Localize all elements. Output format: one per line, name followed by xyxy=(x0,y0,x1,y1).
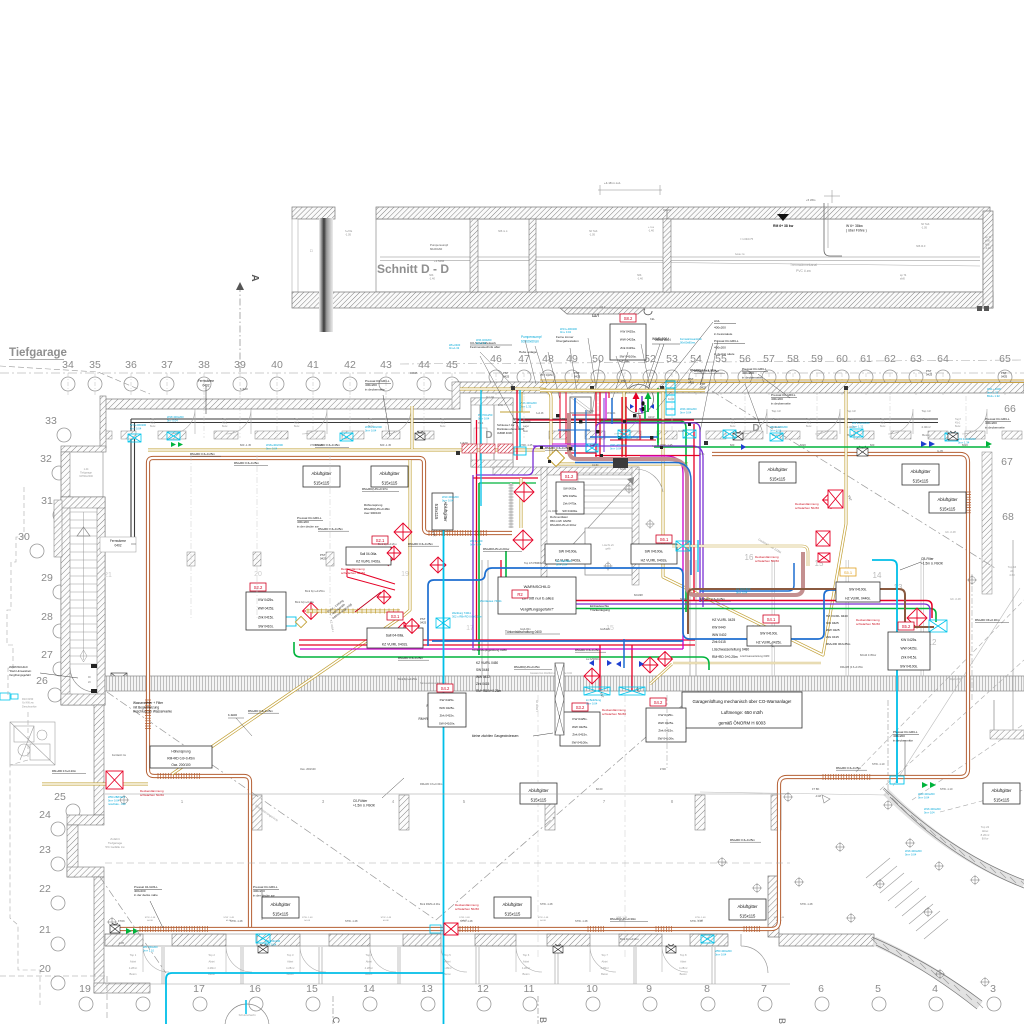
svg-text:-0.48: -0.48 xyxy=(815,794,821,798)
svg-text:W4 b+400/200: W4 b+400/200 xyxy=(958,437,976,441)
svg-text:Blvd+ 1.92: Blvd+ 1.92 xyxy=(987,394,1000,398)
svg-text:Betw: Betw xyxy=(955,425,961,428)
svg-text:W18 400x200: W18 400x200 xyxy=(167,415,184,419)
svg-text:KW 0425s.: KW 0425s. xyxy=(440,698,455,702)
svg-text:Lager: Lager xyxy=(523,425,529,428)
svg-text:4.60: 4.60 xyxy=(1009,573,1015,577)
svg-text:20: 20 xyxy=(254,571,262,578)
svg-text:RM+RD 0.6+0.25m: RM+RD 0.6+0.25m xyxy=(730,838,755,842)
svg-text:Top 4: Top 4 xyxy=(366,953,373,957)
svg-text:Wartburg 74011: Wartburg 74011 xyxy=(452,611,471,615)
svg-text:56: 56 xyxy=(739,353,751,365)
svg-text:RM+RD 0.6+0.45m: RM+RD 0.6+0.45m xyxy=(167,756,195,760)
svg-text:34760x2000: 34760x2000 xyxy=(79,475,93,478)
svg-text:0m+ 0.04: 0m+ 0.04 xyxy=(680,410,692,414)
svg-text:33: 33 xyxy=(45,415,57,427)
svg-text:+4.18 m.ü.A.: +4.18 m.ü.A. xyxy=(604,181,621,185)
svg-text:RM+RD 0.6+0.25m: RM+RD 0.6+0.25m xyxy=(318,527,343,531)
svg-text:21: 21 xyxy=(104,572,112,579)
svg-text:KW 0425s.: KW 0425s. xyxy=(258,598,274,602)
svg-text:0m+1.32: 0m+1.32 xyxy=(476,341,487,345)
svg-text:8220: 8220 xyxy=(800,443,806,447)
svg-text:b1.04: b1.04 xyxy=(668,398,675,401)
svg-text:Sall 04-0illa.: Sall 04-0illa. xyxy=(386,634,405,638)
svg-text:Zirk 0415s.: Zirk 0415s. xyxy=(572,733,587,737)
svg-text:RM+RD 0.6+0.25m: RM+RD 0.6+0.25m xyxy=(836,766,861,770)
svg-text:58: 58 xyxy=(787,353,799,365)
svg-text:Abluftgitter: Abluftgitter xyxy=(528,788,549,793)
svg-text:+5 Whs: +5 Whs xyxy=(806,198,816,202)
svg-text:515x115: 515x115 xyxy=(740,913,756,918)
svg-text:Schnitt D - D: Schnitt D - D xyxy=(377,262,449,276)
svg-text:b+0.48: b+0.48 xyxy=(536,412,544,415)
svg-text:ZbW 04: ZbW 04 xyxy=(607,412,616,415)
svg-text:ШЛ: ШЛ xyxy=(592,313,599,318)
svg-text:4: 4 xyxy=(932,983,938,995)
svg-text:04K25: 04K25 xyxy=(410,371,418,375)
svg-text:Abluftgitter: Abluftgitter xyxy=(737,904,758,909)
svg-text:HZ VU/RL 0425: HZ VU/RL 0425 xyxy=(712,618,735,622)
svg-text:41: 41 xyxy=(307,359,319,371)
svg-text:RM+RD 0.6+0.25m: RM+RD 0.6+0.25m xyxy=(398,656,423,660)
svg-text:SW 0410s.: SW 0410s. xyxy=(258,624,274,628)
svg-text:8: 8 xyxy=(704,983,710,995)
svg-text:10: 10 xyxy=(586,983,598,995)
svg-text:+1.5m ü. FBOK: +1.5m ü. FBOK xyxy=(353,803,376,807)
svg-text:Beton: Beton xyxy=(129,972,137,976)
svg-text:Festmesstechnik after: Festmesstechnik after xyxy=(470,345,500,349)
svg-text:Zirk 0415s.: Zirk 0415s. xyxy=(258,616,274,620)
svg-text:04K25: 04K25 xyxy=(563,430,571,433)
svg-text:HZ VU/RL 0440s.: HZ VU/RL 0440s. xyxy=(845,596,871,600)
svg-text:PST: PST xyxy=(621,379,627,383)
svg-text:W16 400x200: W16 400x200 xyxy=(905,849,922,853)
svg-text:WW 0402: WW 0402 xyxy=(712,633,727,637)
svg-text:60x60x60cm: 60x60x60cm xyxy=(521,339,539,343)
svg-text:60x60x60: 60x60x60 xyxy=(430,247,443,251)
svg-text:Top 2: Top 2 xyxy=(208,953,215,957)
svg-text:WW 0425a.: WW 0425a. xyxy=(620,338,636,342)
svg-text:Oax. 200/100: Oax. 200/100 xyxy=(171,763,190,767)
svg-text:RM+RD 0.6+0.25m: RM+RD 0.6+0.25m xyxy=(234,461,259,465)
svg-text:UJ.I: UJ.I xyxy=(600,305,605,309)
svg-text:Top 13: Top 13 xyxy=(921,409,930,413)
svg-text:KZ VU/RL 0402s.: KZ VU/RL 0402s. xyxy=(382,642,408,646)
svg-text:820 -1.45: 820 -1.45 xyxy=(380,443,392,447)
svg-text:W4b 400x200: W4b 400x200 xyxy=(610,443,627,447)
svg-text:STW -1.48: STW -1.48 xyxy=(575,919,588,923)
svg-text:50: 50 xyxy=(592,353,604,365)
svg-text:Löschwasserleitung 0480: Löschwasserleitung 0480 xyxy=(712,648,749,652)
svg-text:RM+RD 0K+0.30m: RM+RD 0K+0.30m xyxy=(975,618,1000,622)
svg-text:RM+RD 0.6+0.30m: RM+RD 0.6+0.30m xyxy=(420,782,442,786)
svg-text:Gwb-82n: Gwb-82n xyxy=(520,627,531,631)
svg-text:Gwstand zw 40x20cm zw Betw zw: Gwstand zw 40x20cm zw Betw zw 0.04 xyxy=(530,672,573,675)
svg-text:Abtei: Abtei xyxy=(848,417,855,421)
svg-text:0425: 0425 xyxy=(503,374,510,378)
svg-text:Garagenlüftung mechanisch über: Garagenlüftung mechanisch über CO-Warnan… xyxy=(693,699,792,704)
svg-text:82.00: 82.00 xyxy=(596,787,603,791)
svg-text:KEL: KEL xyxy=(650,317,655,321)
svg-text:ZzW: ZzW xyxy=(498,404,504,407)
svg-text:sp 74: sp 74 xyxy=(985,235,992,239)
svg-text:betau zw: betau zw xyxy=(735,253,745,256)
svg-text:0m b: 0m b xyxy=(699,453,705,456)
svg-text:SW 04100a.: SW 04100a. xyxy=(562,509,578,513)
svg-text:0m+ 0.04: 0m+ 0.04 xyxy=(130,426,142,430)
svg-text:515x115: 515x115 xyxy=(434,504,439,520)
svg-text:SW 0425a.: SW 0425a. xyxy=(563,486,577,490)
svg-text:zoo 500x800: zoo 500x800 xyxy=(556,559,572,563)
svg-text:14: 14 xyxy=(873,571,882,580)
svg-text:Erende: Erende xyxy=(523,420,531,423)
svg-text:-1.40: -1.40 xyxy=(637,277,643,281)
svg-text:# f00: # f00 xyxy=(660,767,666,771)
svg-text:0x 1.04: 0x 1.04 xyxy=(486,396,495,399)
svg-text:W 0+400/200: W 0+400/200 xyxy=(130,423,147,427)
svg-text:5% Gefälle zw: 5% Gefälle zw xyxy=(105,845,125,849)
svg-text:Abluftgitter: Abluftgitter xyxy=(270,902,291,907)
svg-text:STW -1.48: STW -1.48 xyxy=(690,919,703,923)
svg-text:S3.2: S3.2 xyxy=(576,705,585,710)
svg-text:59: 59 xyxy=(811,353,823,365)
svg-text:SW 04100s.: SW 04100s. xyxy=(849,588,867,592)
svg-text:Abluftgitter: Abluftgitter xyxy=(910,469,931,474)
svg-text:64: 64 xyxy=(937,353,949,365)
svg-text:Abtei: Abtei xyxy=(523,959,530,963)
svg-text:00x60x80zw: 00x60x80zw xyxy=(680,340,695,344)
svg-text:Fernwärmeantrieb: Fernwärmeantrieb xyxy=(680,337,702,341)
svg-text:48: 48 xyxy=(542,353,554,365)
svg-text:1.44: 1.44 xyxy=(84,468,89,471)
svg-text:D: D xyxy=(752,423,759,434)
svg-text:1.04/LW: 1.04/LW xyxy=(585,410,594,413)
svg-text:3xB08 4030: 3xB08 4030 xyxy=(497,431,512,435)
svg-text:h+7ds: h+7ds xyxy=(345,229,353,233)
svg-text:Tw-b: Tw-b xyxy=(478,422,484,425)
svg-text:Oax. 200/100: Oax. 200/100 xyxy=(300,767,316,771)
svg-text:S4.2: S4.2 xyxy=(654,700,663,705)
svg-text:in deckig säule: in deckig säule xyxy=(714,352,735,356)
svg-text:Top 13: Top 13 xyxy=(846,409,855,413)
svg-text:4.28m²: 4.28m² xyxy=(207,966,215,970)
svg-text:W 6+ 38kw: W 6+ 38kw xyxy=(846,224,863,228)
svg-text:S6.1: S6.1 xyxy=(660,537,669,542)
svg-text:S3.1: S3.1 xyxy=(391,614,400,619)
svg-text:63: 63 xyxy=(910,353,922,365)
svg-text:Top 5: Top 5 xyxy=(444,953,451,957)
svg-text:4.28m²: 4.28m² xyxy=(129,966,137,970)
svg-text:7: 7 xyxy=(761,983,767,995)
svg-text:53: 53 xyxy=(666,353,678,365)
svg-text:HZ VU/RL 0440: HZ VU/RL 0440 xyxy=(826,614,848,618)
svg-text:68: 68 xyxy=(1002,511,1014,523)
svg-text:Betw: Betw xyxy=(222,425,228,428)
svg-text:13: 13 xyxy=(421,983,433,995)
svg-text:Abtei: Abtei xyxy=(366,959,373,963)
svg-text:0425: 0425 xyxy=(1001,374,1008,378)
svg-text:60: 60 xyxy=(836,353,848,365)
svg-text:36: 36 xyxy=(125,359,137,371)
svg-text:W50 400x200: W50 400x200 xyxy=(715,949,732,953)
svg-text:Pn 700x250: Pn 700x250 xyxy=(478,413,493,417)
svg-text:Zirk 0415a.: Zirk 0415a. xyxy=(620,346,636,350)
svg-text:0425: 0425 xyxy=(420,620,427,624)
svg-text:SW 04100a.: SW 04100a. xyxy=(619,354,636,358)
svg-text:Höhensprung: Höhensprung xyxy=(171,750,190,754)
svg-text:Abtei: Abtei xyxy=(602,959,609,963)
svg-text:0m+ 0.04: 0m+ 0.04 xyxy=(560,330,571,334)
svg-text:-1.40: -1.40 xyxy=(985,246,991,250)
svg-text:16: 16 xyxy=(745,553,754,562)
svg-text:S5.2: S5.2 xyxy=(902,624,911,629)
svg-text:RM+RD(U/N+0.37m: RM+RD(U/N+0.37m xyxy=(362,487,389,491)
svg-text:W4b 400x200: W4b 400x200 xyxy=(520,401,537,405)
svg-text:h0 7wb: h0 7wb xyxy=(921,222,930,226)
svg-text:KW 0425a.: KW 0425a. xyxy=(620,329,635,333)
svg-text:WW 0425s.: WW 0425s. xyxy=(258,607,275,611)
svg-text:Beton: Beton xyxy=(922,433,930,437)
svg-text:Tonkonzeptigelstung 0x80: Tonkonzeptigelstung 0x80 xyxy=(472,648,507,652)
svg-text:17: 17 xyxy=(193,983,205,995)
svg-text:0m+ 0.04: 0m+ 0.04 xyxy=(736,590,748,594)
svg-text:Tiefgarage: Tiefgarage xyxy=(80,472,92,475)
svg-text:3: 3 xyxy=(990,983,996,995)
svg-text:S8.2: S8.2 xyxy=(624,316,633,321)
svg-text:in deckenseite: in deckenseite xyxy=(771,401,791,405)
svg-text:Betw: Betw xyxy=(440,425,446,428)
svg-text:Beto: Beto xyxy=(523,430,529,433)
svg-text:Abtei: Abtei xyxy=(287,959,294,963)
svg-text:0m+ 0.04: 0m+ 0.04 xyxy=(442,498,454,502)
svg-text:WW 0425s.: WW 0425s. xyxy=(439,706,455,710)
svg-text:820: 820 xyxy=(730,443,735,447)
svg-text:RM+RB/N+0.25m: RM+RB/N+0.25m xyxy=(476,689,501,693)
svg-text:Bmk b(m+0.2bu: Bmk b(m+0.2bu xyxy=(620,937,639,941)
svg-text:Schutzschacht: Schutzschacht xyxy=(239,1013,256,1017)
svg-text:KZ VU/RL 0402a.: KZ VU/RL 0402a. xyxy=(356,560,381,564)
svg-text:WW 0425s.: WW 0425s. xyxy=(658,721,674,725)
svg-text:400x200: 400x200 xyxy=(714,326,726,330)
svg-text:0402: 0402 xyxy=(114,543,121,547)
svg-text:RM+RD 0.6+0.20m: RM+RD 0.6+0.20m xyxy=(52,769,77,773)
svg-text:h0b: h0b xyxy=(637,273,642,277)
svg-text:Übergabestation: Übergabestation xyxy=(556,339,579,343)
svg-text:= 1.04/0.75: = 1.04/0.75 xyxy=(740,237,754,241)
svg-text:in der decke zw: in der decke zw xyxy=(297,524,319,528)
svg-text:0m+ 1.10: 0m+ 1.10 xyxy=(143,949,154,953)
svg-text:62: 62 xyxy=(884,353,896,365)
svg-text:Beton: Beton xyxy=(522,972,530,976)
svg-text:schwächen 50x50: schwächen 50x50 xyxy=(455,907,479,911)
svg-text:-1.05: -1.05 xyxy=(345,233,351,237)
svg-text:SW 04100s.: SW 04100s. xyxy=(900,664,918,668)
svg-text:Bmk b(m+0.25m: Bmk b(m+0.25m xyxy=(398,677,417,681)
svg-text:RM+RD 0.6+0.45m: RM+RD 0.6+0.45m xyxy=(315,443,340,447)
svg-text:40: 40 xyxy=(271,359,283,371)
svg-text:R10 0150: R10 0150 xyxy=(22,697,34,701)
svg-text:W6 400x200: W6 400x200 xyxy=(143,945,158,949)
svg-text:+ 1.a: + 1.a xyxy=(648,225,654,229)
svg-text:Abluftgitter: Abluftgitter xyxy=(379,471,400,476)
svg-text:Löschwasserleitung 0480: Löschwasserleitung 0480 xyxy=(740,654,770,658)
svg-text:RM 6+ 38 kw: RM 6+ 38 kw xyxy=(773,224,794,228)
svg-text:4.28m²: 4.28m² xyxy=(443,966,451,970)
svg-text:12: 12 xyxy=(477,983,489,995)
svg-text:515x115: 515x115 xyxy=(770,476,786,481)
svg-text:Gw54n5: Gw54n5 xyxy=(600,627,610,631)
svg-text:WWB 800 l: WWB 800 l xyxy=(655,338,671,342)
svg-text:STW -1.48: STW -1.48 xyxy=(145,917,156,919)
svg-text:KW 0425s.: KW 0425s. xyxy=(658,713,673,717)
svg-text:STW -1.48: STW -1.48 xyxy=(540,902,553,906)
svg-text:Deschronkte: Deschronkte xyxy=(22,704,37,708)
svg-text:Top 13: Top 13 xyxy=(771,409,780,413)
svg-text:in deckenseite: in deckenseite xyxy=(985,425,1005,429)
svg-text:B.Kw: B.Kw xyxy=(982,837,990,841)
svg-text:f.b KW zw: f.b KW zw xyxy=(22,701,34,705)
svg-text:3700 -1.45: 3700 -1.45 xyxy=(520,443,533,447)
svg-text:0425: 0425 xyxy=(926,372,933,376)
svg-text:Abtei: Abtei xyxy=(923,417,930,421)
svg-text:Wortlautes 74011: Wortlautes 74011 xyxy=(480,599,502,603)
svg-text:KW 0425: KW 0425 xyxy=(826,621,839,625)
svg-text:in deckenseite: in deckenseite xyxy=(742,375,762,379)
svg-text:44: 44 xyxy=(418,359,430,371)
svg-text:+1.5m ü. FBOK: +1.5m ü. FBOK xyxy=(921,561,944,565)
svg-text:42: 42 xyxy=(344,359,356,371)
svg-text:RM+RD 0+0.25m: RM+RD 0+0.25m xyxy=(712,655,738,659)
svg-text:80.98: 80.98 xyxy=(680,597,687,601)
svg-text:gelb: gelb xyxy=(606,547,611,551)
svg-text:0425a: 0425a xyxy=(560,418,567,421)
svg-text:Abluftgitter: Abluftgitter xyxy=(991,788,1012,793)
svg-text:-2.35: -2.35 xyxy=(118,941,124,945)
svg-text:4.28m²: 4.28m² xyxy=(365,966,373,970)
svg-text:schwächen 50x50: schwächen 50x50 xyxy=(602,712,626,716)
svg-text:sp 74: sp 74 xyxy=(900,273,907,277)
svg-text:STW -1.10: STW -1.10 xyxy=(940,787,953,791)
svg-text:0m+1.32: 0m+1.32 xyxy=(449,346,460,350)
svg-text:Abluftgitter: Abluftgitter xyxy=(937,497,958,502)
svg-text:WARNSCHILD: WARNSCHILD xyxy=(524,584,551,589)
svg-text:0m+ 1.32: 0m+ 1.32 xyxy=(987,390,999,394)
svg-text:SW 04100s.: SW 04100s. xyxy=(572,741,589,745)
svg-text:HZ VU/RL 0402a.: HZ VU/RL 0402a. xyxy=(641,558,668,562)
svg-text:20: 20 xyxy=(39,963,51,975)
svg-text:Bmk RD/N+0.3bu: Bmk RD/N+0.3bu xyxy=(420,902,441,906)
svg-text:Sall 04-0illa.: Sall 04-0illa. xyxy=(360,552,377,556)
svg-text:31: 31 xyxy=(41,495,53,507)
svg-text:in betonsäule: in betonsäule xyxy=(714,332,733,336)
svg-text:19: 19 xyxy=(401,571,409,578)
svg-text:W4b 400x200: W4b 400x200 xyxy=(680,407,697,411)
svg-text:29: 29 xyxy=(41,572,53,584)
svg-text:ILK -0.48: ILK -0.48 xyxy=(950,597,961,601)
svg-text:S5.1: S5.1 xyxy=(844,570,853,575)
svg-text:Zirk 0415: Zirk 0415 xyxy=(712,640,726,644)
svg-text:h0b: h0b xyxy=(429,273,434,277)
svg-text:schwächen 50x50: schwächen 50x50 xyxy=(755,559,779,563)
svg-text:Zirk 0415s.: Zirk 0415s. xyxy=(658,729,673,733)
svg-text:Betw: Betw xyxy=(806,425,812,428)
svg-text:STW -1.48: STW -1.48 xyxy=(459,917,470,919)
svg-text:RM+RD 0.6+0.25m: RM+RD 0.6+0.25m xyxy=(408,542,433,546)
svg-text:SW 04100s.: SW 04100s. xyxy=(658,737,675,741)
svg-text:Top 1/5 PBRNb A: Top 1/5 PBRNb A xyxy=(524,561,544,565)
svg-text:25: 25 xyxy=(54,791,66,803)
svg-text:45: 45 xyxy=(446,359,458,371)
svg-text:0m+ 0.04: 0m+ 0.04 xyxy=(770,428,782,432)
svg-text:Lüscht eft: Lüscht eft xyxy=(602,543,614,547)
svg-text:STW -1.48: STW -1.48 xyxy=(460,919,473,923)
svg-text:R2: R2 xyxy=(517,592,523,597)
svg-text:IL-05: IL-05 xyxy=(937,449,943,453)
svg-text:0425: 0425 xyxy=(320,556,327,560)
svg-text:21: 21 xyxy=(39,924,51,936)
svg-text:WW 0425a.: WW 0425a. xyxy=(563,494,578,498)
svg-text:schwächen 50x50: schwächen 50x50 xyxy=(856,622,880,626)
svg-text:FTOK: FTOK xyxy=(118,919,125,923)
svg-text:14: 14 xyxy=(363,983,375,995)
svg-text:515x115: 515x115 xyxy=(505,911,521,916)
svg-text:46: 46 xyxy=(490,353,502,365)
svg-text:kleine zächtlen Gasgewindessen: kleine zächtlen Gasgewindessen xyxy=(472,734,519,738)
svg-text:Beton: Beton xyxy=(444,972,452,976)
svg-text:S1.2: S1.2 xyxy=(565,474,574,479)
svg-text:Bmk b(m+0.25zu: Bmk b(m+0.25zu xyxy=(305,589,325,593)
svg-text:Abluftgitter: Abluftgitter xyxy=(311,471,332,476)
svg-text:32: 32 xyxy=(40,453,52,465)
svg-text:Top 6: Top 6 xyxy=(523,953,530,957)
svg-text:0m+ 0.04: 0m+ 0.04 xyxy=(905,852,917,856)
svg-text:515x115: 515x115 xyxy=(314,480,330,485)
svg-text:515x115: 515x115 xyxy=(382,480,398,485)
svg-text:0m+ 1.32: 0m+ 1.32 xyxy=(852,424,864,428)
svg-text:RM+RD 0.6+0.25m: RM+RD 0.6+0.25m xyxy=(190,452,215,456)
svg-text:zw 600x800: zw 600x800 xyxy=(736,587,751,591)
svg-text:Fernleitz zw: Fernleitz zw xyxy=(112,753,126,757)
svg-text:Vergiftungsgefahl: Vergiftungsgefahl xyxy=(9,673,31,677)
svg-text:AUL: AUL xyxy=(714,319,720,323)
svg-text:S4.1: S4.1 xyxy=(767,617,776,622)
svg-text:zbl0: zbl0 xyxy=(900,277,905,281)
svg-text:0x425: 0x425 xyxy=(678,430,685,433)
svg-text:820 -1.45: 820 -1.45 xyxy=(240,443,252,447)
svg-text:515x115: 515x115 xyxy=(940,506,956,511)
svg-text:RM+RD(U/N+0.30m: RM+RD(U/N+0.30m xyxy=(610,917,637,921)
svg-text:0m+ 0.04: 0m+ 0.04 xyxy=(715,952,727,956)
svg-text:24: 24 xyxy=(39,809,51,821)
svg-text:0m+ 0.04: 0m+ 0.04 xyxy=(266,446,278,450)
svg-text:W4 b+400/200: W4 b+400/200 xyxy=(852,421,870,425)
svg-text:RM+RD 0K/L35m: RM+RD 0K/L35m xyxy=(826,642,851,646)
svg-text:0m+ 0.04: 0m+ 0.04 xyxy=(918,795,930,799)
svg-text:SW 04100a.: SW 04100a. xyxy=(559,550,578,554)
svg-text:STW -1.48: STW -1.48 xyxy=(223,917,234,919)
svg-text:0m+ 0.04: 0m+ 0.04 xyxy=(586,701,598,705)
svg-text:Bmk b(m+0.2bu: Bmk b(m+0.2bu xyxy=(378,542,397,546)
svg-text:RM+RB (0.6+0.35m: RM+RB (0.6+0.35m xyxy=(840,665,863,669)
svg-text:4.40m²: 4.40m² xyxy=(921,425,930,429)
svg-text:B: B xyxy=(777,1018,787,1024)
svg-text:WW 0425s.: WW 0425s. xyxy=(572,725,588,729)
svg-text:Anschluss an Wasserwerke: Anschluss an Wasserwerke xyxy=(133,710,172,714)
svg-text:WW 0422: WW 0422 xyxy=(476,675,490,679)
svg-text:zbl0: zbl0 xyxy=(985,239,990,243)
svg-text:STW -1.10: STW -1.10 xyxy=(872,762,885,766)
svg-text:820: 820 xyxy=(870,443,875,447)
